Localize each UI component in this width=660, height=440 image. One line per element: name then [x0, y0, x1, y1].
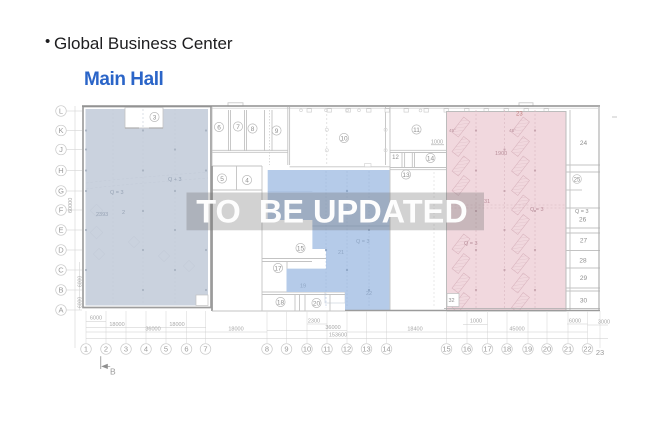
svg-text:E: E [58, 226, 63, 235]
svg-text:45°: 45° [509, 128, 516, 133]
svg-text:6000: 6000 [569, 319, 581, 325]
svg-text:9: 9 [275, 128, 279, 135]
svg-text:11: 11 [413, 127, 420, 134]
svg-text:2300: 2300 [308, 319, 320, 325]
svg-text:20: 20 [543, 345, 551, 354]
svg-text:60000: 60000 [68, 198, 74, 213]
svg-text:D: D [58, 246, 64, 255]
svg-text:22: 22 [583, 345, 591, 354]
svg-text:J: J [59, 145, 63, 154]
svg-text:25: 25 [574, 177, 581, 183]
svg-text:L: L [59, 107, 63, 116]
svg-text:1000: 1000 [470, 319, 482, 325]
svg-text:2393: 2393 [96, 212, 108, 218]
svg-text:6: 6 [184, 345, 188, 354]
svg-text:21: 21 [338, 250, 344, 256]
svg-text:6: 6 [217, 124, 221, 131]
svg-text:13: 13 [362, 345, 370, 354]
svg-text:3: 3 [153, 114, 157, 121]
svg-text:5: 5 [164, 345, 168, 354]
svg-text:18000: 18000 [109, 322, 124, 328]
svg-text:8: 8 [265, 345, 269, 354]
svg-text:14: 14 [427, 155, 435, 162]
svg-text:18: 18 [277, 299, 285, 306]
svg-text:20: 20 [313, 300, 321, 307]
svg-text:Q = 3: Q = 3 [110, 190, 124, 196]
svg-text:23: 23 [516, 112, 523, 118]
svg-text:31: 31 [484, 199, 490, 205]
svg-text:Q = 3: Q = 3 [575, 209, 589, 215]
svg-text:Q = 3: Q = 3 [356, 239, 370, 245]
svg-text:21: 21 [564, 345, 572, 354]
svg-text:1: 1 [84, 345, 88, 354]
svg-text:16: 16 [463, 345, 471, 354]
svg-text:C: C [58, 266, 64, 275]
svg-text:8: 8 [251, 126, 255, 133]
svg-text:B: B [110, 367, 116, 377]
svg-text:2: 2 [122, 210, 125, 216]
svg-text:4: 4 [144, 345, 148, 354]
svg-text:15: 15 [442, 345, 450, 354]
svg-text:19: 19 [300, 284, 306, 290]
svg-text:2: 2 [104, 345, 108, 354]
svg-text:10: 10 [340, 135, 348, 142]
svg-text:5: 5 [220, 176, 224, 183]
svg-text:18400: 18400 [407, 327, 422, 333]
svg-text:A: A [58, 306, 63, 315]
svg-text:7: 7 [236, 124, 240, 131]
svg-text:45°: 45° [449, 128, 456, 133]
svg-text:28: 28 [579, 258, 587, 265]
svg-text:18000: 18000 [169, 322, 184, 328]
svg-text:Q = 3: Q = 3 [464, 241, 478, 247]
svg-text:36000: 36000 [325, 325, 340, 331]
svg-text:14: 14 [382, 345, 390, 354]
svg-text:B: B [58, 286, 63, 295]
svg-text:4: 4 [245, 177, 249, 184]
svg-text:Q = 3: Q = 3 [530, 207, 544, 213]
svg-text:TO BE UPDATED: TO BE UPDATED [196, 194, 467, 230]
svg-text:24: 24 [580, 140, 588, 147]
svg-text:30: 30 [580, 298, 588, 305]
svg-text:G: G [58, 187, 64, 196]
svg-text:12: 12 [343, 345, 351, 354]
svg-text:11: 11 [323, 345, 331, 354]
svg-text:153600: 153600 [329, 333, 347, 339]
svg-text:7: 7 [203, 345, 207, 354]
svg-text:H: H [58, 166, 63, 175]
svg-text:18000: 18000 [228, 327, 243, 333]
svg-text:17: 17 [274, 265, 282, 272]
svg-text:26: 26 [579, 217, 587, 224]
svg-text:1000: 1000 [431, 140, 443, 146]
svg-text:Q + 3: Q + 3 [168, 177, 182, 183]
svg-text:9: 9 [284, 345, 288, 354]
svg-text:3: 3 [124, 345, 128, 354]
svg-text:K: K [58, 126, 63, 135]
svg-text:12: 12 [392, 155, 399, 161]
svg-text:45000: 45000 [509, 327, 524, 333]
svg-text:32: 32 [449, 298, 455, 304]
svg-text:22: 22 [366, 291, 372, 297]
svg-text:F: F [59, 206, 64, 215]
svg-text:10: 10 [303, 345, 311, 354]
svg-text:36000: 36000 [145, 327, 160, 333]
svg-text:23: 23 [596, 348, 604, 357]
svg-text:19: 19 [524, 345, 532, 354]
svg-text:27: 27 [580, 238, 588, 245]
svg-text:3000: 3000 [598, 320, 610, 326]
svg-text:15: 15 [297, 245, 305, 252]
svg-text:29: 29 [580, 275, 588, 282]
svg-text:1900: 1900 [495, 151, 507, 157]
svg-text:18: 18 [503, 345, 511, 354]
svg-text:13: 13 [402, 172, 410, 179]
svg-text:17: 17 [483, 345, 491, 354]
svg-text:6000: 6000 [90, 316, 102, 322]
